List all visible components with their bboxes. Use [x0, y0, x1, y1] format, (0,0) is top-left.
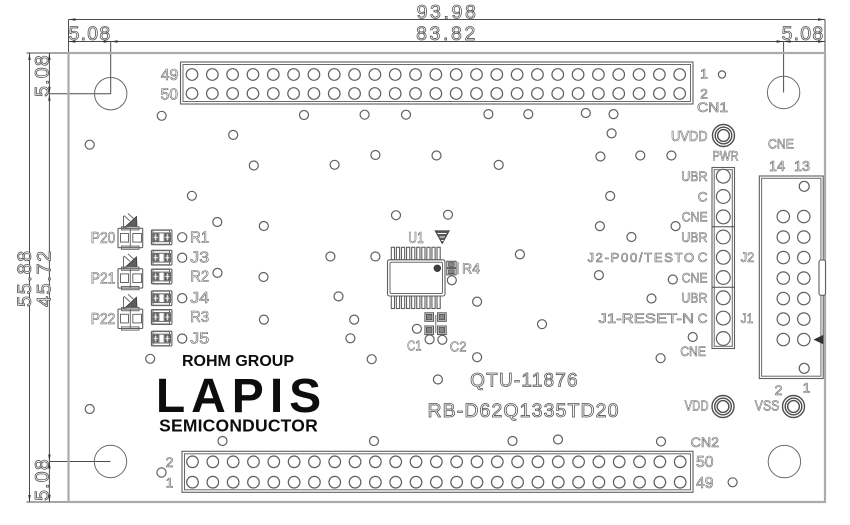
svg-text:49: 49: [696, 475, 714, 492]
svg-text:49: 49: [161, 67, 179, 84]
svg-text:CNE: CNE: [768, 136, 794, 152]
svg-text:P22: P22: [91, 311, 116, 328]
svg-text:P21: P21: [91, 270, 116, 287]
svg-text:1: 1: [803, 380, 811, 396]
svg-text:C: C: [698, 188, 708, 204]
svg-text:UVDD: UVDD: [671, 128, 708, 145]
svg-text:CNE: CNE: [680, 343, 706, 359]
svg-text:CN2: CN2: [691, 434, 720, 450]
svg-text:VSS: VSS: [755, 399, 780, 415]
svg-text:U1: U1: [408, 230, 424, 247]
svg-text:50: 50: [161, 87, 179, 104]
svg-text:VDD: VDD: [685, 399, 709, 415]
svg-text:C: C: [698, 310, 708, 326]
svg-text:UBR: UBR: [681, 168, 707, 184]
svg-text:83.82: 83.82: [416, 23, 478, 45]
svg-text:1: 1: [166, 474, 174, 490]
svg-text:UBR: UBR: [681, 229, 707, 245]
svg-text:P20: P20: [91, 230, 116, 247]
svg-text:CNE: CNE: [682, 269, 708, 285]
svg-text:C1: C1: [407, 337, 422, 354]
svg-text:50: 50: [696, 454, 714, 471]
svg-text:J4: J4: [190, 290, 209, 307]
svg-text:R2: R2: [190, 269, 209, 286]
svg-text:QTU-11876: QTU-11876: [470, 371, 579, 392]
svg-text:93.98: 93.98: [417, 1, 479, 23]
svg-text:CN1: CN1: [697, 99, 728, 115]
svg-text:5.08: 5.08: [32, 458, 54, 501]
svg-text:UBR: UBR: [681, 290, 707, 306]
svg-text:SEMICONDUCTOR: SEMICONDUCTOR: [159, 416, 318, 436]
svg-text:J5: J5: [190, 331, 209, 348]
svg-text:13: 13: [794, 159, 810, 175]
svg-text:J2-P00/TESTO: J2-P00/TESTO: [587, 250, 695, 265]
svg-text:5.08: 5.08: [69, 23, 112, 45]
svg-text:J3: J3: [190, 250, 209, 267]
svg-text:J1-RESET-N: J1-RESET-N: [599, 310, 695, 326]
svg-text:ROHM GROUP: ROHM GROUP: [182, 353, 294, 370]
svg-text:J1: J1: [741, 310, 754, 326]
svg-text:14: 14: [769, 159, 785, 175]
svg-text:5.08: 5.08: [782, 23, 825, 45]
svg-text:R3: R3: [190, 309, 209, 326]
svg-text:C2: C2: [450, 338, 467, 355]
svg-text:1: 1: [700, 66, 708, 82]
svg-text:CNE: CNE: [682, 209, 708, 225]
svg-text:45.72: 45.72: [34, 249, 56, 307]
svg-text:J2: J2: [741, 249, 755, 265]
svg-text:R1: R1: [190, 229, 209, 246]
svg-text:5.08: 5.08: [32, 54, 54, 97]
svg-text:C: C: [698, 249, 708, 265]
svg-text:PWR: PWR: [712, 148, 738, 164]
svg-text:2: 2: [775, 382, 783, 398]
svg-text:RB-D62Q1335TD20: RB-D62Q1335TD20: [427, 400, 619, 422]
svg-text:R4: R4: [462, 261, 480, 278]
svg-text:2: 2: [166, 454, 174, 470]
